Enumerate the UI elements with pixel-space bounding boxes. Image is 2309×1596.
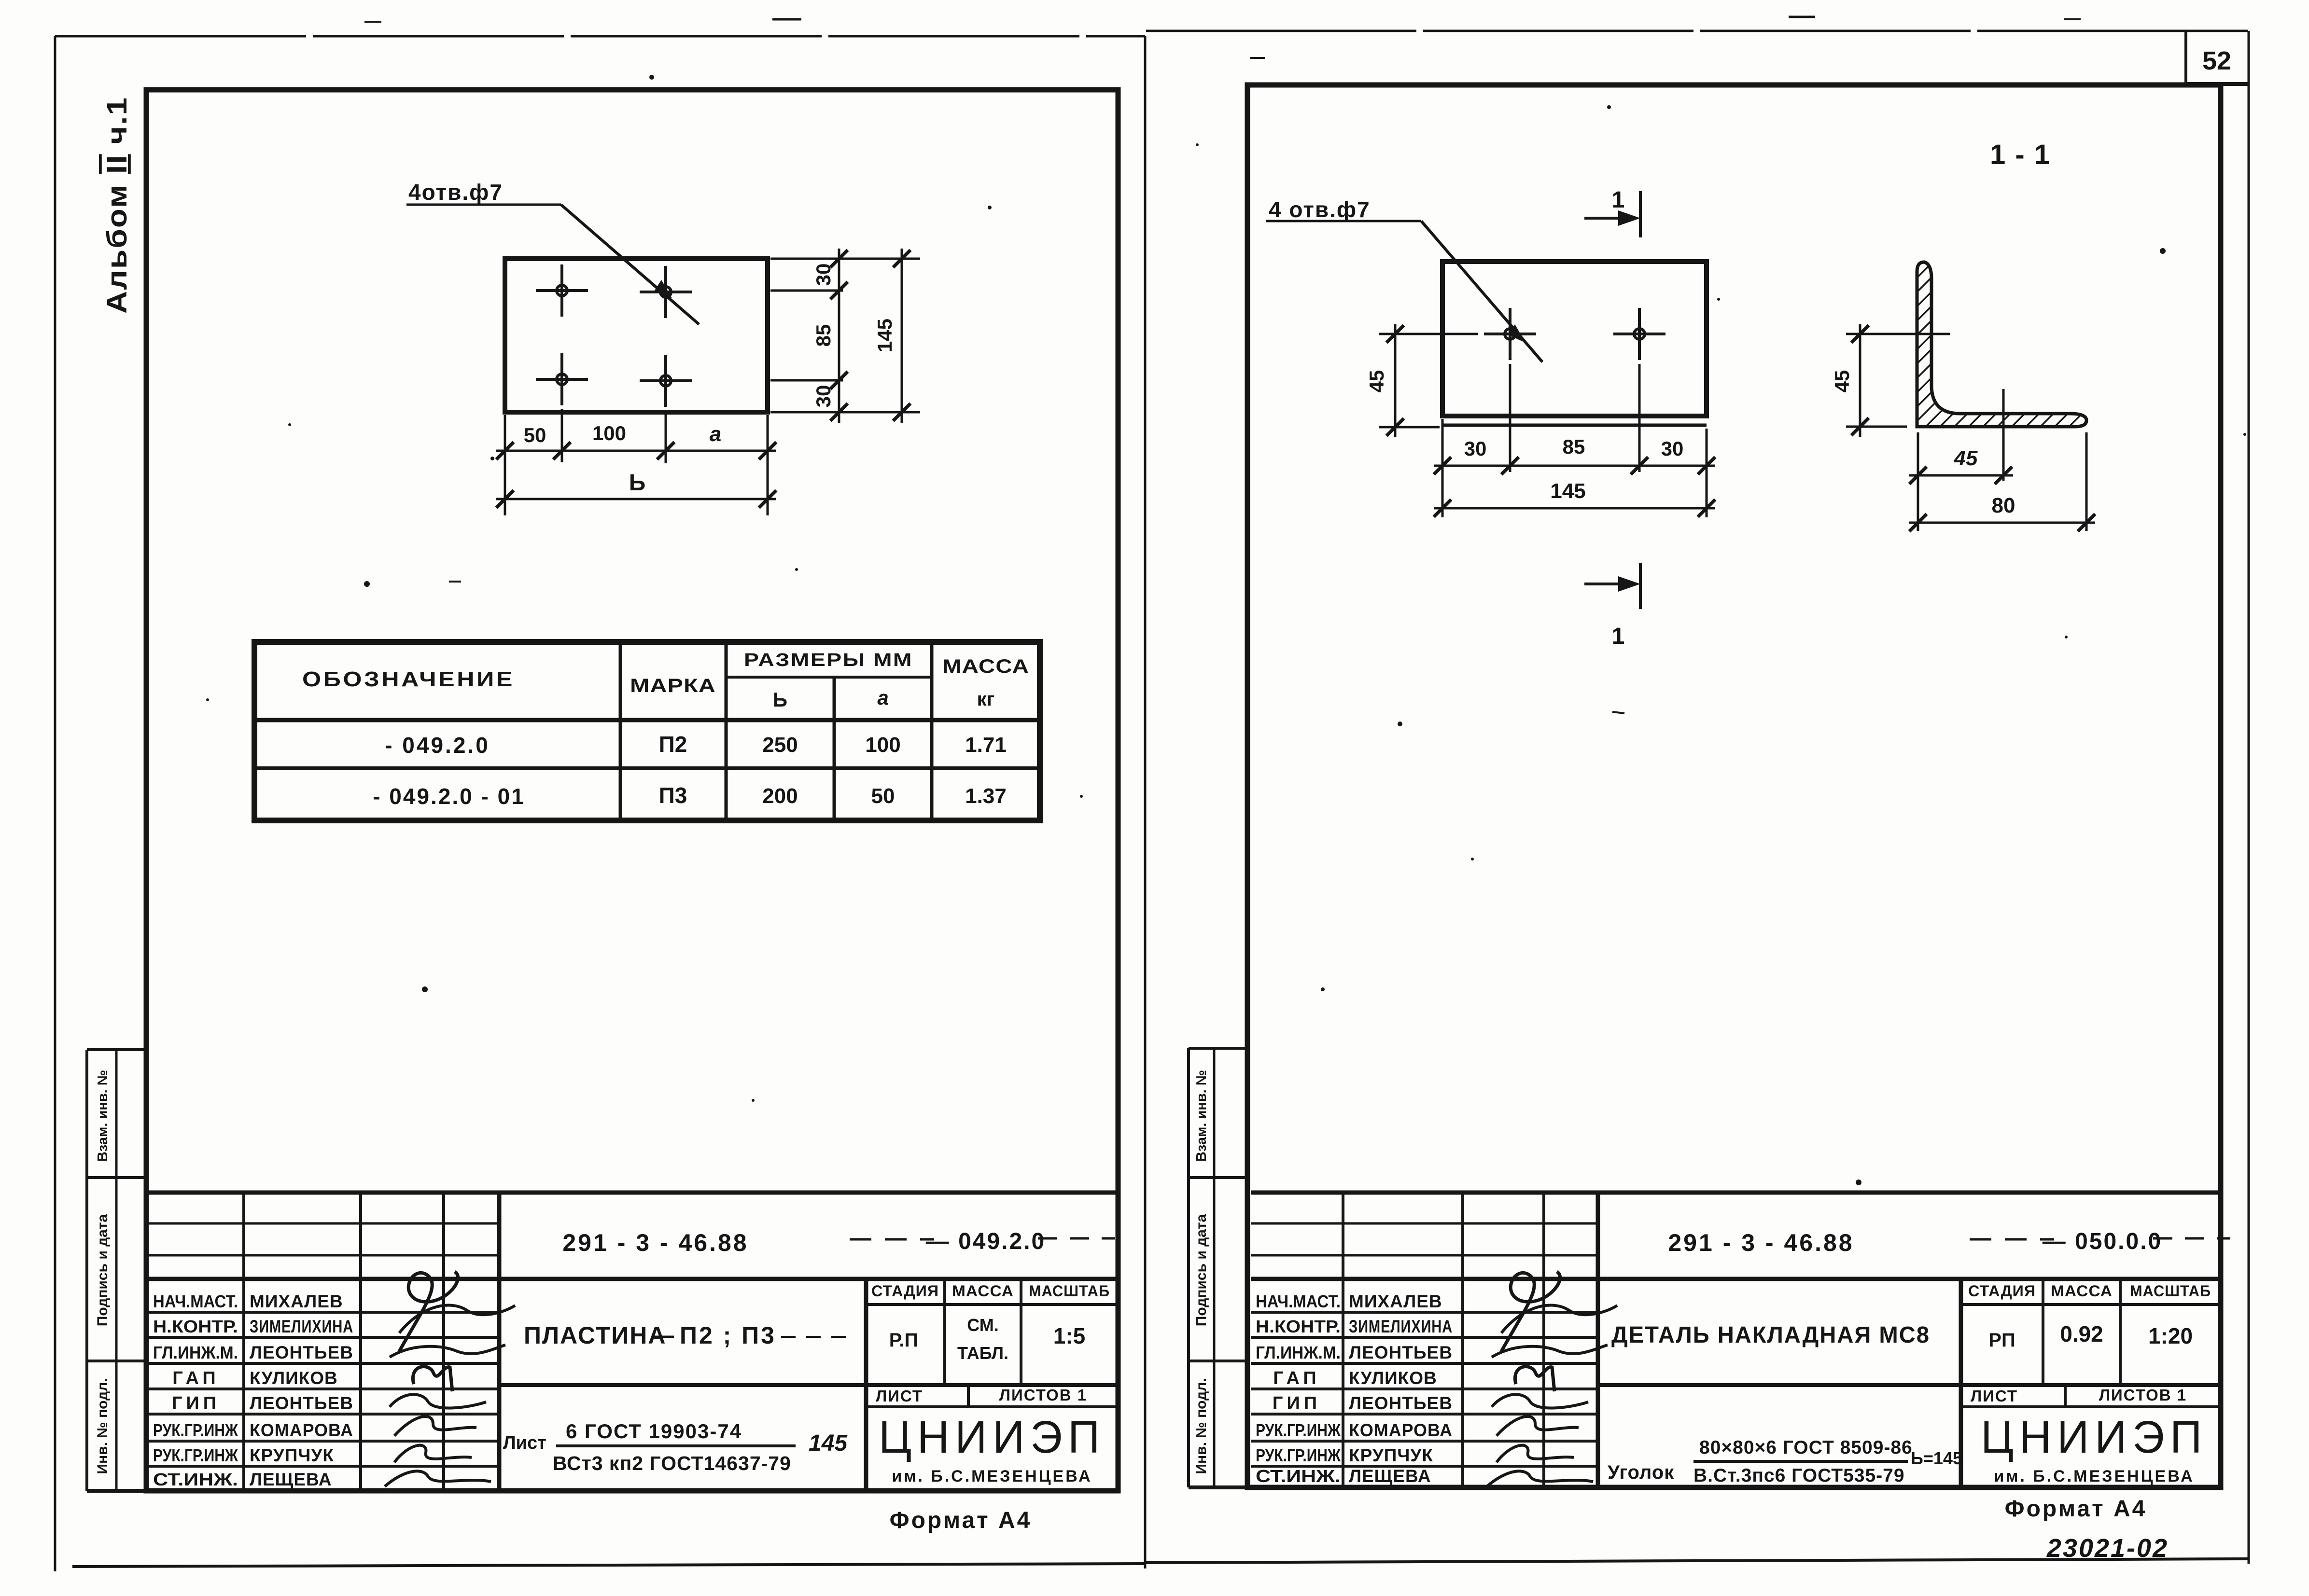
svg-text:КУЛИКОВ: КУЛИКОВ	[1349, 1368, 1437, 1388]
svg-text:ЦНИИЭП: ЦНИИЭП	[1981, 1412, 2208, 1463]
svg-text:52: 52	[2202, 46, 2231, 75]
svg-text:a: a	[877, 686, 888, 709]
svg-text:КРУПЧУК: КРУПЧУК	[250, 1445, 334, 1465]
svg-text:ГЛ.ИНЖ.М.: ГЛ.ИНЖ.М.	[153, 1343, 238, 1362]
svg-text:1: 1	[1612, 624, 1625, 649]
svg-text:ЗИМЕЛИХИНА: ЗИМЕЛИХИНА	[1349, 1317, 1453, 1336]
svg-text:145: 145	[1550, 479, 1585, 503]
svg-text:291 - 3 - 46.88: 291 - 3 - 46.88	[1668, 1229, 1854, 1256]
svg-text:ЛИСТ: ЛИСТ	[1971, 1387, 2018, 1405]
svg-text:45: 45	[1365, 370, 1388, 393]
svg-text:Инв. № подл.: Инв. № подл.	[95, 1378, 111, 1474]
svg-text:Взам. инв. №: Взам. инв. №	[1194, 1070, 1209, 1162]
svg-text:23021-02: 23021-02	[2046, 1534, 2169, 1563]
svg-text:Лист: Лист	[503, 1433, 546, 1453]
svg-text:ГАП: ГАП	[1273, 1368, 1320, 1388]
svg-text:ГАП: ГАП	[172, 1368, 219, 1388]
svg-text:РП: РП	[1988, 1330, 2015, 1351]
svg-text:30: 30	[1661, 437, 1684, 460]
svg-text:Альбом II ч.1: Альбом II ч.1	[101, 97, 133, 314]
svg-text:МИХАЛЕВ: МИХАЛЕВ	[250, 1291, 343, 1311]
svg-text:Уголок: Уголок	[1608, 1462, 1674, 1483]
svg-text:РУК.ГР.ИНЖ: РУК.ГР.ИНЖ	[1256, 1420, 1341, 1440]
svg-text:КОМАРОВА: КОМАРОВА	[250, 1420, 353, 1440]
svg-text:a: a	[710, 422, 721, 446]
svg-text:Формат А4: Формат А4	[890, 1508, 1032, 1533]
svg-text:Ь: Ь	[629, 470, 646, 496]
svg-text:П2: П2	[659, 732, 687, 757]
svg-text:ОБОЗНАЧЕНИЕ: ОБОЗНАЧЕНИЕ	[302, 667, 515, 691]
svg-text:- 049.2.0: - 049.2.0	[385, 733, 490, 758]
svg-text:Инв. № подл.: Инв. № подл.	[1193, 1378, 1209, 1474]
svg-text:П3: П3	[659, 783, 687, 808]
svg-text:145: 145	[809, 1430, 848, 1456]
svg-text:В.Ст.3пс6 ГОСТ535-79: В.Ст.3пс6 ГОСТ535-79	[1693, 1465, 1905, 1486]
svg-text:ВСт3 кп2 ГОСТ14637-79: ВСт3 кп2 ГОСТ14637-79	[553, 1452, 791, 1474]
svg-text:Ь=145: Ь=145	[1911, 1448, 1962, 1468]
svg-text:ЛЕОНТЬЕВ: ЛЕОНТЬЕВ	[250, 1393, 353, 1413]
svg-text:85: 85	[812, 324, 835, 347]
svg-text:30: 30	[812, 385, 835, 408]
svg-text:МАССА: МАССА	[2051, 1282, 2113, 1300]
svg-text:МАСШТАБ: МАСШТАБ	[2130, 1282, 2211, 1300]
svg-text:ЛЕЩЕВА: ЛЕЩЕВА	[250, 1470, 332, 1489]
svg-text:Подпись и дата: Подпись и дата	[1193, 1214, 1209, 1326]
svg-text:45: 45	[1954, 446, 1978, 470]
svg-text:КОМАРОВА: КОМАРОВА	[1349, 1420, 1453, 1440]
svg-text:1 - 1: 1 - 1	[1990, 139, 2051, 170]
svg-text:ГЛ.ИНЖ.М.: ГЛ.ИНЖ.М.	[1256, 1343, 1341, 1362]
svg-text:30: 30	[1464, 437, 1487, 460]
svg-text:Взам. инв. №: Взам. инв. №	[95, 1070, 111, 1162]
svg-text:— 050.0.0: — 050.0.0	[2043, 1229, 2162, 1254]
svg-text:СТАДИЯ: СТАДИЯ	[1968, 1282, 2036, 1300]
svg-text:МАРКА: МАРКА	[630, 675, 716, 696]
svg-text:МАССА: МАССА	[942, 656, 1029, 677]
svg-text:СМ.: СМ.	[967, 1315, 999, 1335]
svg-text:СТАДИЯ: СТАДИЯ	[871, 1282, 939, 1300]
svg-text:ЛИСТОВ 1: ЛИСТОВ 1	[999, 1386, 1087, 1404]
svg-text:Н.КОНТР.: Н.КОНТР.	[153, 1317, 238, 1336]
svg-text:НАЧ.МАСТ.: НАЧ.МАСТ.	[1256, 1291, 1341, 1311]
svg-text:ЛЕОНТЬЕВ: ЛЕОНТЬЕВ	[250, 1343, 353, 1362]
svg-text:им. Б.С.МЕЗЕНЦЕВА: им. Б.С.МЕЗЕНЦЕВА	[892, 1467, 1092, 1485]
svg-text:1.37: 1.37	[965, 784, 1007, 808]
svg-text:291 - 3 - 46.88: 291 - 3 - 46.88	[562, 1229, 748, 1256]
svg-text:ЛЕОНТЬЕВ: ЛЕОНТЬЕВ	[1349, 1393, 1453, 1413]
svg-text:МАСШТАБ: МАСШТАБ	[1029, 1282, 1110, 1300]
svg-text:4 отв.ф7: 4 отв.ф7	[1269, 197, 1371, 222]
svg-text:Формат А4: Формат А4	[2005, 1496, 2147, 1522]
svg-text:- 049.2.0 - 01: - 049.2.0 - 01	[373, 784, 525, 809]
svg-text:1:5: 1:5	[1053, 1323, 1085, 1348]
svg-text:ПЛАСТИНА: ПЛАСТИНА	[524, 1322, 666, 1349]
svg-text:ГИП: ГИП	[172, 1393, 220, 1414]
svg-text:ЗИМЕЛИХИНА: ЗИМЕЛИХИНА	[250, 1317, 353, 1336]
svg-text:100: 100	[865, 733, 900, 757]
svg-text:— 049.2.0: — 049.2.0	[926, 1229, 1046, 1254]
svg-text:Ь: Ь	[773, 688, 787, 711]
svg-text:Р.П: Р.П	[889, 1330, 919, 1351]
svg-text:СТ.ИНЖ.: СТ.ИНЖ.	[1256, 1466, 1341, 1486]
svg-text:145: 145	[873, 319, 896, 352]
svg-text:80: 80	[1992, 494, 2015, 517]
svg-text:50: 50	[524, 424, 546, 446]
svg-text:Подпись и дата: Подпись и дата	[95, 1214, 111, 1326]
svg-text:30: 30	[812, 264, 835, 286]
svg-text:ЛЕЩЕВА: ЛЕЩЕВА	[1349, 1466, 1431, 1486]
svg-text:6 ГОСТ 19903-74: 6 ГОСТ 19903-74	[566, 1420, 742, 1443]
svg-text:им. Б.С.МЕЗЕНЦЕВА: им. Б.С.МЕЗЕНЦЕВА	[1994, 1467, 2194, 1485]
svg-text:КУЛИКОВ: КУЛИКОВ	[250, 1368, 338, 1388]
svg-text:РУК.ГР.ИНЖ: РУК.ГР.ИНЖ	[153, 1420, 238, 1440]
svg-text:ГИП: ГИП	[1273, 1393, 1321, 1414]
svg-text:МИХАЛЕВ: МИХАЛЕВ	[1349, 1291, 1442, 1311]
svg-text:1.71: 1.71	[965, 733, 1007, 757]
svg-text:РУК.ГР.ИНЖ: РУК.ГР.ИНЖ	[1256, 1445, 1341, 1465]
svg-text:ТАБЛ.: ТАБЛ.	[957, 1343, 1008, 1363]
svg-text:80×80×6 ГОСТ 8509-86: 80×80×6 ГОСТ 8509-86	[1699, 1437, 1913, 1458]
svg-text:ЛИСТ: ЛИСТ	[876, 1387, 923, 1405]
svg-text:50: 50	[871, 784, 895, 808]
svg-text:85: 85	[1563, 435, 1585, 458]
svg-text:Н.КОНТР.: Н.КОНТР.	[1256, 1317, 1341, 1336]
svg-text:ЦНИИЭП: ЦНИИЭП	[879, 1412, 1106, 1463]
svg-text:МАССА: МАССА	[952, 1282, 1014, 1300]
svg-text:45: 45	[1831, 370, 1853, 393]
svg-text:250: 250	[762, 733, 798, 757]
svg-text:4отв.ф7: 4отв.ф7	[408, 180, 503, 205]
svg-text:кг: кг	[977, 689, 995, 710]
svg-text:СТ.ИНЖ.: СТ.ИНЖ.	[153, 1470, 238, 1489]
svg-text:РАЗМЕРЫ ММ: РАЗМЕРЫ ММ	[744, 650, 913, 670]
svg-text:200: 200	[762, 784, 798, 808]
svg-text:П2 ; П3: П2 ; П3	[680, 1322, 776, 1349]
svg-text:РУК.ГР.ИНЖ: РУК.ГР.ИНЖ	[153, 1445, 238, 1465]
svg-text:ЛЕОНТЬЕВ: ЛЕОНТЬЕВ	[1349, 1343, 1453, 1362]
svg-text:КРУПЧУК: КРУПЧУК	[1349, 1445, 1433, 1465]
svg-text:ДЕТАЛЬ НАКЛАДНАЯ МС8: ДЕТАЛЬ НАКЛАДНАЯ МС8	[1611, 1322, 1930, 1348]
svg-text:ЛИСТОВ 1: ЛИСТОВ 1	[2099, 1386, 2187, 1404]
svg-text:1: 1	[1612, 187, 1625, 213]
svg-text:НАЧ.МАСТ.: НАЧ.МАСТ.	[153, 1291, 238, 1311]
svg-text:0.92: 0.92	[2060, 1321, 2103, 1346]
svg-text:1:20: 1:20	[2148, 1323, 2193, 1348]
svg-text:100: 100	[592, 422, 626, 444]
